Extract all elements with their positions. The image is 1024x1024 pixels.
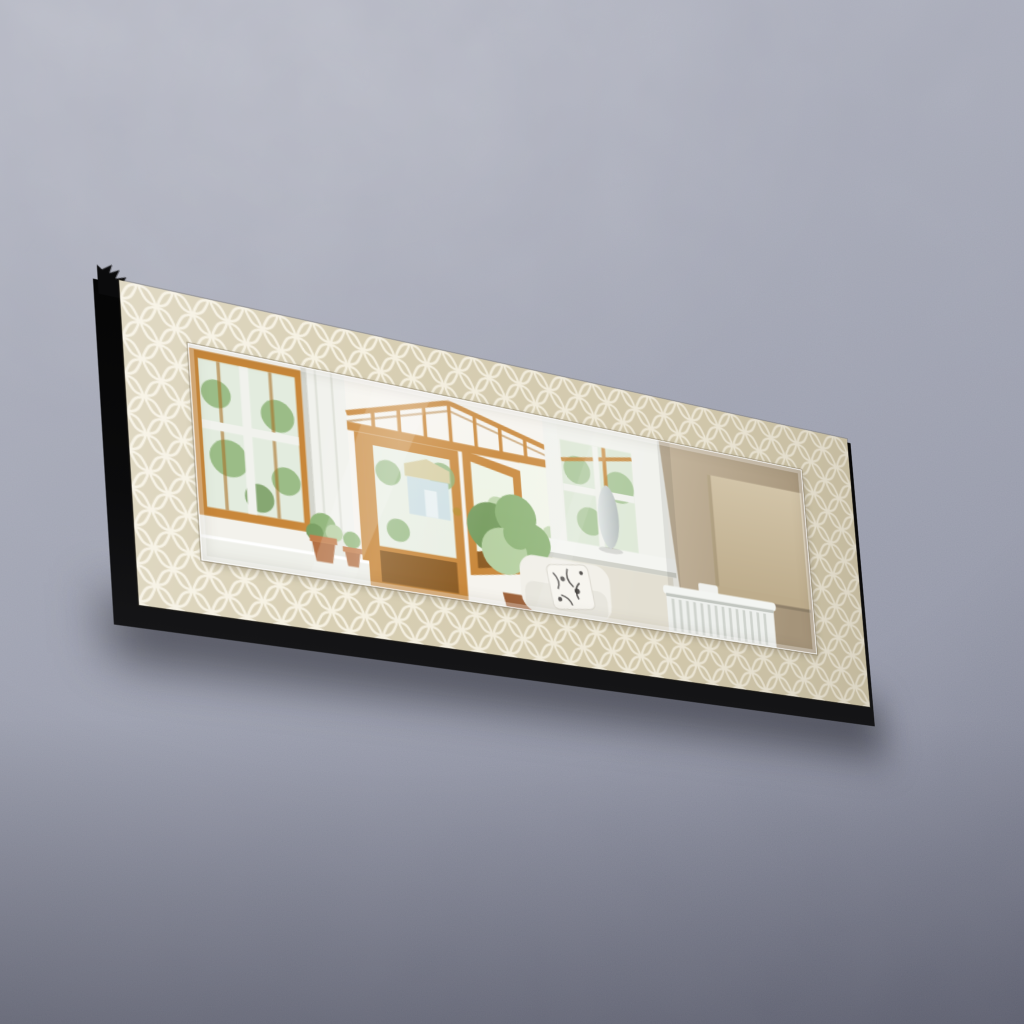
reflected-roller-blind	[707, 475, 811, 613]
scene-root: { "scene": { "type": "product-photograph…	[0, 0, 1024, 1024]
reflected-oak-window	[188, 347, 314, 533]
